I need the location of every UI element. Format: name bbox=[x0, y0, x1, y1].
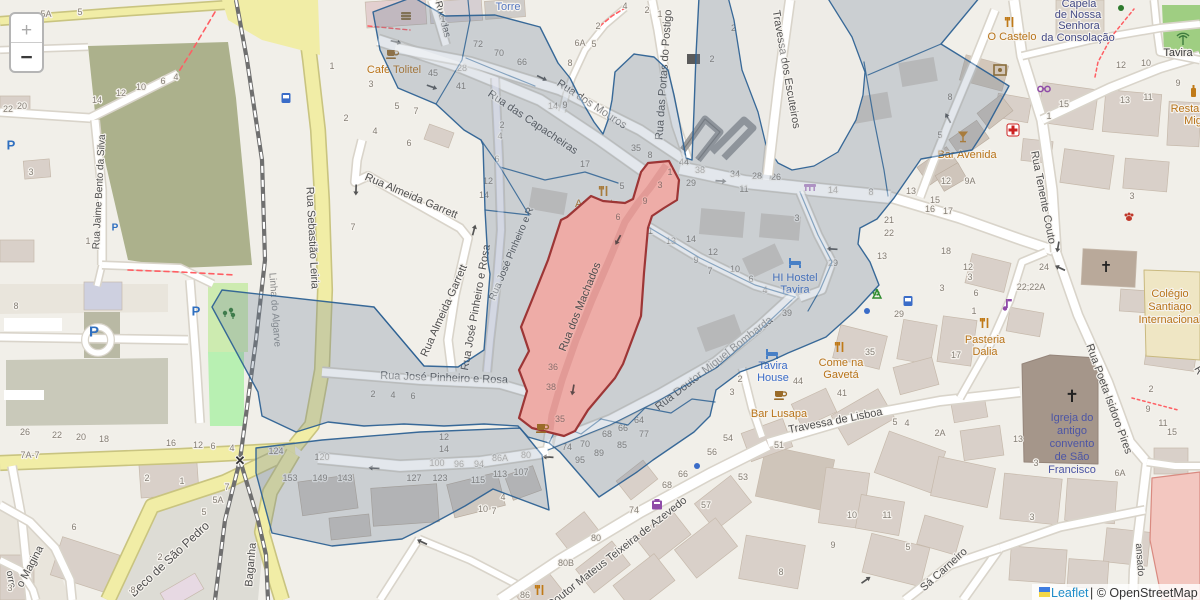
svg-text:44: 44 bbox=[793, 376, 803, 386]
svg-text:✝: ✝ bbox=[1065, 387, 1079, 406]
svg-text:9: 9 bbox=[1145, 404, 1150, 414]
svg-text:2: 2 bbox=[1148, 384, 1153, 394]
svg-text:3: 3 bbox=[7, 583, 12, 593]
svg-text:3: 3 bbox=[1129, 191, 1134, 201]
svg-text:1: 1 bbox=[179, 476, 184, 486]
svg-text:5A: 5A bbox=[212, 495, 223, 505]
svg-text:7: 7 bbox=[350, 222, 355, 232]
svg-text:de São: de São bbox=[1055, 451, 1090, 463]
svg-text:13: 13 bbox=[906, 186, 916, 196]
svg-text:17: 17 bbox=[943, 206, 953, 216]
svg-text:11: 11 bbox=[1143, 92, 1152, 102]
svg-text:ansado: ansado bbox=[1133, 543, 1146, 577]
svg-text:35: 35 bbox=[555, 414, 565, 424]
svg-text:5: 5 bbox=[591, 39, 596, 49]
svg-text:5: 5 bbox=[77, 7, 82, 17]
svg-text:22: 22 bbox=[884, 228, 894, 238]
svg-text:12: 12 bbox=[1116, 60, 1126, 70]
svg-text:13: 13 bbox=[877, 251, 887, 261]
svg-text:24: 24 bbox=[1039, 262, 1049, 272]
svg-text:9: 9 bbox=[642, 196, 647, 206]
svg-text:6: 6 bbox=[160, 76, 165, 86]
svg-text:12: 12 bbox=[193, 440, 203, 450]
svg-text:Torre: Torre bbox=[495, 1, 520, 13]
svg-text:2: 2 bbox=[343, 113, 348, 123]
svg-text:| © OpenStreetMap: | © OpenStreetMap bbox=[1090, 586, 1198, 600]
svg-text:P: P bbox=[192, 304, 201, 319]
svg-text:7: 7 bbox=[413, 106, 418, 116]
svg-text:P: P bbox=[7, 138, 16, 153]
svg-text:57: 57 bbox=[701, 500, 711, 510]
svg-text:O Castelo: O Castelo bbox=[988, 31, 1037, 43]
svg-text:Leaflet: Leaflet bbox=[1051, 586, 1089, 600]
svg-text:6: 6 bbox=[615, 212, 620, 222]
svg-text:80B: 80B bbox=[558, 558, 574, 568]
svg-text:−: − bbox=[20, 46, 32, 69]
svg-text:Internacional: Internacional bbox=[1139, 314, 1200, 326]
svg-text:10: 10 bbox=[847, 510, 857, 520]
svg-text:Gavetá: Gavetá bbox=[823, 369, 859, 381]
svg-text:66: 66 bbox=[678, 469, 688, 479]
svg-text:3: 3 bbox=[939, 283, 944, 293]
svg-text:1: 1 bbox=[657, 9, 662, 19]
svg-text:38: 38 bbox=[546, 382, 556, 392]
svg-text:3: 3 bbox=[28, 167, 33, 177]
svg-text:10: 10 bbox=[478, 504, 488, 514]
svg-text:18: 18 bbox=[99, 434, 109, 444]
svg-text:16: 16 bbox=[925, 204, 935, 214]
svg-text:1: 1 bbox=[667, 167, 672, 177]
svg-text:House: House bbox=[757, 372, 789, 384]
svg-text:4: 4 bbox=[173, 72, 178, 82]
svg-text:21: 21 bbox=[884, 215, 894, 225]
svg-text:3: 3 bbox=[729, 387, 734, 397]
svg-text:74: 74 bbox=[629, 505, 639, 515]
svg-text:7: 7 bbox=[491, 506, 496, 516]
svg-text:Tavira: Tavira bbox=[1163, 47, 1193, 59]
svg-text:26: 26 bbox=[20, 427, 30, 437]
svg-text:9: 9 bbox=[1175, 78, 1180, 88]
svg-text:9A: 9A bbox=[964, 176, 975, 186]
svg-text:4: 4 bbox=[372, 126, 377, 136]
svg-text:68: 68 bbox=[662, 480, 672, 490]
svg-text:6: 6 bbox=[71, 522, 76, 532]
svg-text:da Consolação: da Consolação bbox=[1041, 32, 1114, 44]
svg-text:80: 80 bbox=[591, 533, 601, 543]
svg-text:3: 3 bbox=[967, 272, 972, 282]
svg-text:Mig: Mig bbox=[1184, 115, 1200, 127]
svg-text:20: 20 bbox=[17, 101, 27, 111]
svg-text:22: 22 bbox=[52, 430, 62, 440]
svg-text:2: 2 bbox=[157, 552, 162, 562]
svg-text:4: 4 bbox=[904, 418, 909, 428]
svg-text:36: 36 bbox=[548, 362, 558, 372]
svg-text:16: 16 bbox=[166, 438, 176, 448]
svg-text:Igreja do: Igreja do bbox=[1051, 412, 1094, 424]
svg-text:6: 6 bbox=[973, 288, 978, 298]
svg-text:6: 6 bbox=[406, 138, 411, 148]
svg-text:6: 6 bbox=[210, 441, 215, 451]
svg-text:12: 12 bbox=[963, 262, 973, 272]
svg-text:15: 15 bbox=[1167, 427, 1177, 437]
svg-text:8: 8 bbox=[567, 58, 572, 68]
svg-text:13: 13 bbox=[1013, 434, 1023, 444]
svg-text:22: 22 bbox=[3, 104, 13, 114]
svg-text:41: 41 bbox=[837, 388, 847, 398]
svg-text:14: 14 bbox=[92, 95, 102, 105]
svg-text:8: 8 bbox=[130, 585, 135, 595]
svg-text:P: P bbox=[112, 223, 119, 234]
svg-text:4: 4 bbox=[229, 443, 234, 453]
svg-text:3: 3 bbox=[368, 79, 373, 89]
svg-text:56: 56 bbox=[707, 447, 717, 457]
svg-text:+: + bbox=[21, 20, 32, 41]
svg-text:7A-7: 7A-7 bbox=[20, 450, 39, 460]
svg-text:2: 2 bbox=[595, 21, 600, 31]
svg-text:✝: ✝ bbox=[1100, 259, 1113, 276]
svg-text:Santiago: Santiago bbox=[1148, 301, 1191, 313]
svg-text:18: 18 bbox=[941, 246, 951, 256]
svg-text:1: 1 bbox=[1046, 111, 1051, 121]
svg-text:Francisco: Francisco bbox=[1048, 464, 1096, 476]
svg-text:9: 9 bbox=[830, 540, 835, 550]
svg-text:17: 17 bbox=[951, 350, 961, 360]
svg-text:1: 1 bbox=[971, 306, 976, 316]
svg-text:Pasteria: Pasteria bbox=[965, 334, 1006, 346]
svg-text:Bar Lusapa: Bar Lusapa bbox=[751, 408, 808, 420]
svg-text:✕: ✕ bbox=[235, 453, 246, 468]
svg-text:2A: 2A bbox=[934, 428, 945, 438]
svg-text:3: 3 bbox=[657, 180, 662, 190]
svg-text:2: 2 bbox=[644, 5, 649, 15]
svg-text:6A: 6A bbox=[1114, 468, 1125, 478]
svg-text:6A: 6A bbox=[574, 38, 585, 48]
svg-text:8: 8 bbox=[778, 567, 783, 577]
svg-text:Come na: Come na bbox=[819, 357, 865, 369]
svg-text:4: 4 bbox=[622, 1, 627, 11]
svg-text:7: 7 bbox=[224, 482, 229, 492]
svg-text:5: 5 bbox=[892, 417, 897, 427]
svg-text:86: 86 bbox=[520, 590, 530, 600]
svg-text:10: 10 bbox=[1141, 58, 1151, 68]
svg-text:Colégio: Colégio bbox=[1151, 288, 1188, 300]
svg-text:3: 3 bbox=[1033, 458, 1038, 468]
svg-text:51: 51 bbox=[774, 440, 784, 450]
svg-text:2: 2 bbox=[737, 374, 742, 384]
svg-text:1: 1 bbox=[329, 61, 334, 71]
svg-text:1: 1 bbox=[85, 236, 90, 246]
svg-text:29: 29 bbox=[894, 309, 904, 319]
svg-text:3: 3 bbox=[1029, 512, 1034, 522]
svg-text:12: 12 bbox=[116, 88, 126, 98]
svg-text:35: 35 bbox=[865, 347, 875, 357]
svg-text:P: P bbox=[89, 323, 99, 340]
svg-text:53: 53 bbox=[738, 472, 748, 482]
svg-text:20: 20 bbox=[76, 432, 86, 442]
svg-text:Restau: Restau bbox=[1171, 103, 1200, 115]
svg-text:5: 5 bbox=[905, 542, 910, 552]
svg-text:54: 54 bbox=[723, 433, 733, 443]
svg-text:11: 11 bbox=[882, 510, 891, 520]
svg-text:5: 5 bbox=[394, 101, 399, 111]
svg-text:10: 10 bbox=[136, 82, 146, 92]
svg-text:convento: convento bbox=[1050, 438, 1095, 450]
svg-text:2: 2 bbox=[144, 473, 149, 483]
svg-text:Dalia: Dalia bbox=[972, 346, 998, 358]
svg-text:22;22A: 22;22A bbox=[1017, 282, 1046, 292]
svg-text:13: 13 bbox=[1120, 95, 1130, 105]
svg-text:15: 15 bbox=[1059, 99, 1069, 109]
svg-text:5: 5 bbox=[201, 507, 206, 517]
svg-text:Senhora: Senhora bbox=[1058, 20, 1100, 32]
svg-text:8: 8 bbox=[13, 301, 18, 311]
svg-text:antigo: antigo bbox=[1057, 425, 1087, 437]
svg-text:12: 12 bbox=[941, 176, 951, 186]
